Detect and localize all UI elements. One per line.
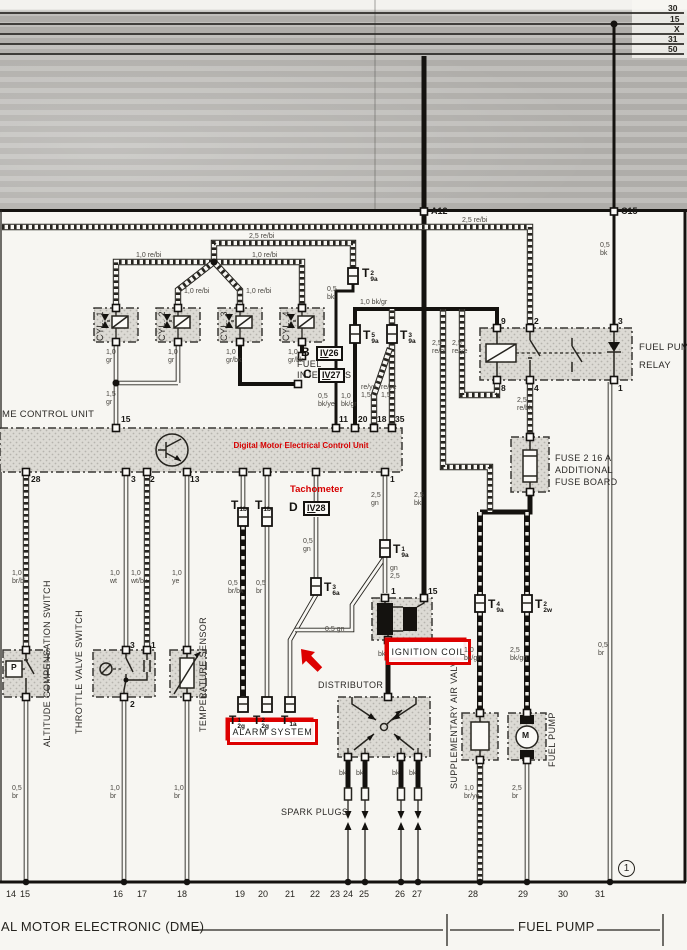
diagram-artwork xyxy=(0,0,687,950)
wire-grbk-c xyxy=(240,342,298,384)
wires-gr-injectors xyxy=(116,342,178,425)
porsche-dme-wiring-diagram: 30 15 X 31 50 A12 C15 ME CONTROL UNIT CY… xyxy=(0,0,687,950)
spark-plug-symbols xyxy=(345,788,422,882)
wire-gn-t1a xyxy=(290,595,316,697)
dme-control-unit-box xyxy=(0,428,402,472)
wire-gn-t1a xyxy=(290,595,316,697)
wire-rebi-cyl2 xyxy=(178,262,214,307)
power-bus-lines xyxy=(0,13,684,54)
footer-lines xyxy=(192,914,663,946)
wire-bk-ye-pin11 xyxy=(336,284,353,425)
red-pointer-arrow xyxy=(301,649,322,672)
ignition-coil-annotation-box xyxy=(386,639,465,659)
distributor-box xyxy=(338,697,430,757)
wire-rebi-cyl3 xyxy=(214,262,240,307)
wires-spark-bk xyxy=(348,757,418,790)
alarm-system-annotation-box xyxy=(227,719,312,739)
